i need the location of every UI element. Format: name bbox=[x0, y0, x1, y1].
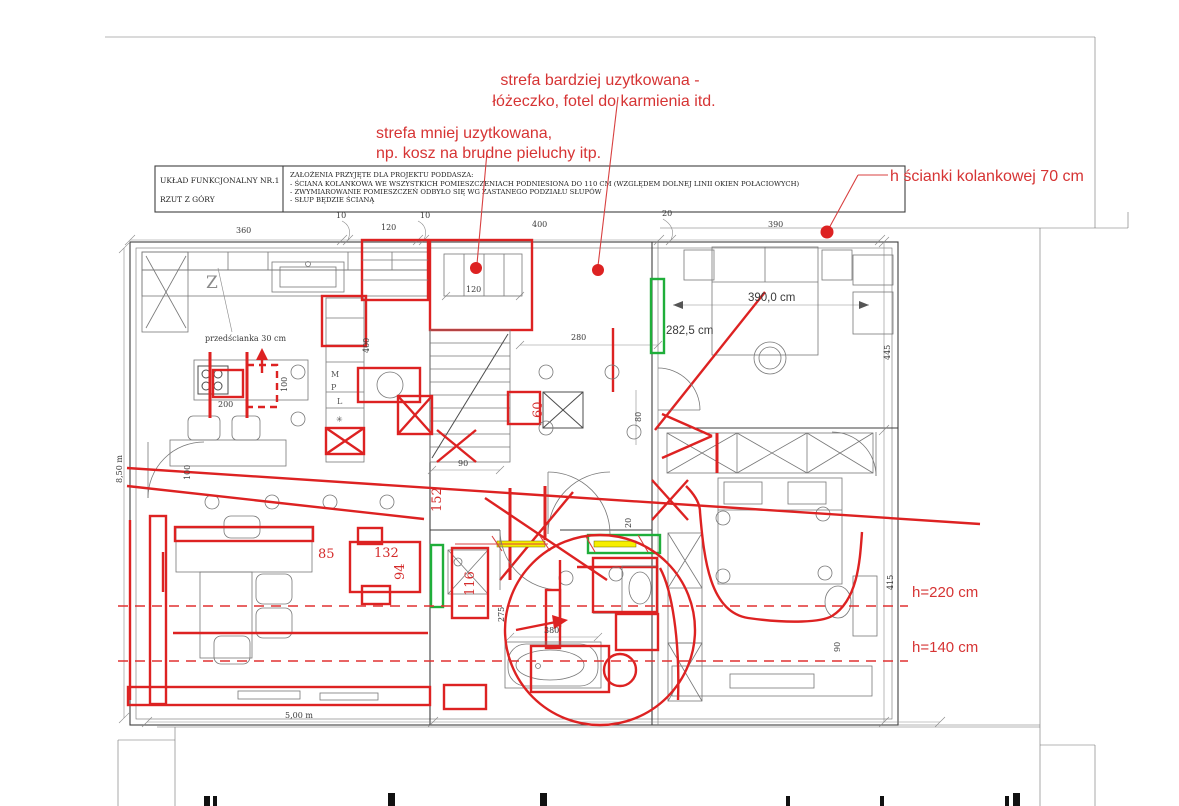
title-block-name: UKŁAD FUNKCJONALNY NR.1 bbox=[160, 176, 279, 185]
dim-top-360: 360 bbox=[236, 226, 251, 235]
dim-top-10b: 10 bbox=[420, 211, 430, 220]
washbasin bbox=[622, 566, 658, 612]
dim-threshold-20: 20 bbox=[624, 518, 633, 528]
leader-dot-knee-wall bbox=[821, 226, 834, 239]
leader-dot-crib bbox=[470, 262, 482, 274]
dim-room-280: 280 bbox=[571, 333, 586, 342]
red-dim-132: 132 bbox=[374, 546, 399, 561]
apartment-walls bbox=[130, 242, 898, 725]
office-desk bbox=[176, 528, 312, 572]
bedroom-main bbox=[651, 247, 893, 430]
crib bbox=[444, 254, 522, 296]
dim-hall-80: 80 bbox=[634, 412, 643, 422]
dim-top-120: 120 bbox=[381, 223, 396, 232]
office bbox=[128, 442, 486, 709]
attention-circle bbox=[505, 535, 695, 725]
cropped-bottom-text bbox=[204, 793, 1020, 806]
dim-right-415: 415 bbox=[886, 575, 895, 590]
symbol-m: M bbox=[331, 370, 339, 379]
red-dim-60: 60 bbox=[531, 401, 546, 418]
annotation-zone-less-line2: np. kosz na brudne pieluchy itp. bbox=[376, 145, 601, 162]
red-dim-116: 116 bbox=[463, 571, 478, 596]
dim-top-10a: 10 bbox=[336, 211, 346, 220]
title-block-view: RZUT Z GÓRY bbox=[160, 195, 216, 204]
dim-top-20: 20 bbox=[662, 209, 672, 218]
dim-bed-width: 390,0 cm bbox=[748, 292, 795, 304]
label-h220: h=220 cm bbox=[912, 584, 978, 601]
snowflake-icon: ✳ bbox=[336, 415, 343, 424]
dim-stairs-90: 90 bbox=[458, 459, 468, 468]
annotation-zone-more-line1: strefa bardziej uzytkowana - bbox=[500, 72, 699, 89]
stairs bbox=[398, 330, 510, 462]
symbol-p: P bbox=[331, 383, 337, 392]
structural-columns bbox=[205, 365, 832, 585]
dim-wall-400: 400 bbox=[362, 338, 371, 353]
wardrobe-strip bbox=[662, 414, 873, 473]
dim-crib-120: 120 bbox=[466, 285, 481, 294]
radiator-green bbox=[651, 279, 664, 353]
dim-bath-275: 275 bbox=[497, 607, 506, 622]
dim-bath-380: 380 bbox=[544, 626, 559, 635]
bed-second bbox=[718, 478, 842, 584]
dim-room-width: 282,5 cm bbox=[666, 325, 713, 337]
annotation-zone-more-line2: łóżeczko, fotel do karmienia itd. bbox=[492, 93, 715, 110]
red-dim-85: 85 bbox=[318, 547, 335, 562]
kitchen bbox=[142, 252, 430, 466]
label-partition: przedścianka 30 cm bbox=[205, 334, 286, 343]
dim-top-390: 390 bbox=[768, 220, 783, 229]
dim-door-100: 100 bbox=[183, 465, 192, 480]
annotation-knee-wall: h ścianki kolankowej 70 cm bbox=[890, 168, 1084, 185]
dim-left-height: 8,50 m bbox=[115, 455, 124, 483]
dishwasher-symbol: Z bbox=[206, 273, 218, 293]
dim-bottom-width: 5,00 m bbox=[285, 711, 313, 720]
title-block: UKŁAD FUNKCJONALNY NR.1 RZUT Z GÓRY ZAŁO… bbox=[155, 166, 905, 212]
symbol-l: L bbox=[337, 397, 343, 406]
dim-right-445: 445 bbox=[883, 345, 892, 360]
floor-plan-page: UKŁAD FUNKCJONALNY NR.1 RZUT Z GÓRY ZAŁO… bbox=[0, 0, 1179, 806]
assumption-3: - SŁUP BĘDZIE ŚCIANĄ bbox=[290, 195, 374, 204]
assumptions-title: ZAŁOŻENIA PRZYJĘTE DLA PROJEKTU PODDASZA… bbox=[290, 170, 473, 179]
red-dim-152: 152 bbox=[430, 487, 445, 512]
annotation-zone-less-line1: strefa mniej uzytkowana, bbox=[376, 125, 552, 142]
dim-bedroom-90: 90 bbox=[833, 642, 842, 652]
label-h140: h=140 cm bbox=[912, 639, 978, 656]
bathroom bbox=[431, 530, 695, 725]
assumption-2: - ZWYMIAROWANIE POMIESZCZEŃ ODBYŁO SIĘ W… bbox=[290, 187, 602, 196]
leader-dot-zone bbox=[592, 264, 604, 276]
assumption-1: - ŚCIANA KOLANKOWA WE WSZYSTKICH POMIESZ… bbox=[290, 179, 799, 188]
dim-kitchen-100: 100 bbox=[280, 377, 289, 392]
dim-kitchen-200: 200 bbox=[218, 400, 233, 409]
floor-plan-drawing: UKŁAD FUNKCJONALNY NR.1 RZUT Z GÓRY ZAŁO… bbox=[0, 0, 1179, 806]
dim-top-400: 400 bbox=[532, 220, 547, 229]
tall-cabinets: M P L ✳ bbox=[322, 240, 428, 462]
red-dim-94: 94 bbox=[393, 563, 408, 580]
